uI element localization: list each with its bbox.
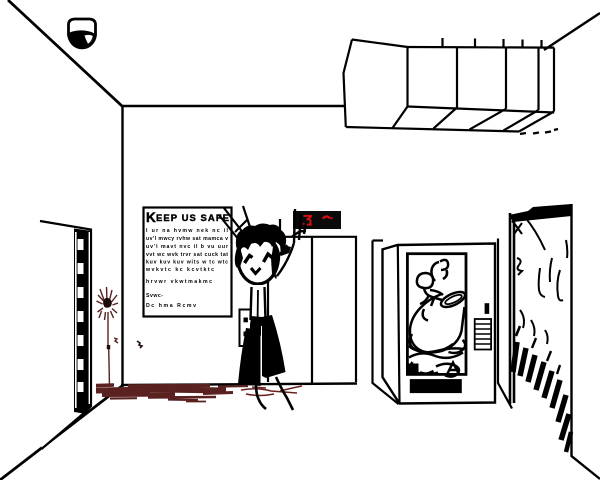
svg-text:EEP US SAFE: EEP US SAFE xyxy=(156,213,229,224)
svg-text:K: K xyxy=(146,210,156,225)
svg-text:Dc hma Rcmv: Dc hma Rcmv xyxy=(146,303,196,309)
svg-text:wvkvtc kc kcvtktc: wvkvtc kc kcvtktc xyxy=(145,267,214,273)
svg-text:kuv kuv kuv wits w tc wtc: kuv kuv kuv wits w tc wtc xyxy=(146,260,228,266)
svg-text:Svwc-: Svwc- xyxy=(146,293,163,299)
svg-text:uv'l mavt nvc il b vu uur: uv'l mavt nvc il b vu uur xyxy=(146,244,228,250)
svg-text:hrvwr vkwtmakmc: hrvwr vkwtmakmc xyxy=(146,279,212,285)
svg-text:uv'l mwcy rvhw sat mamca v: uv'l mwcy rvhw sat mamca v xyxy=(146,236,228,242)
svg-text:vvt wc wvk trvr sat cuck tat: vvt wc wvk trvr sat cuck tat xyxy=(146,252,228,258)
